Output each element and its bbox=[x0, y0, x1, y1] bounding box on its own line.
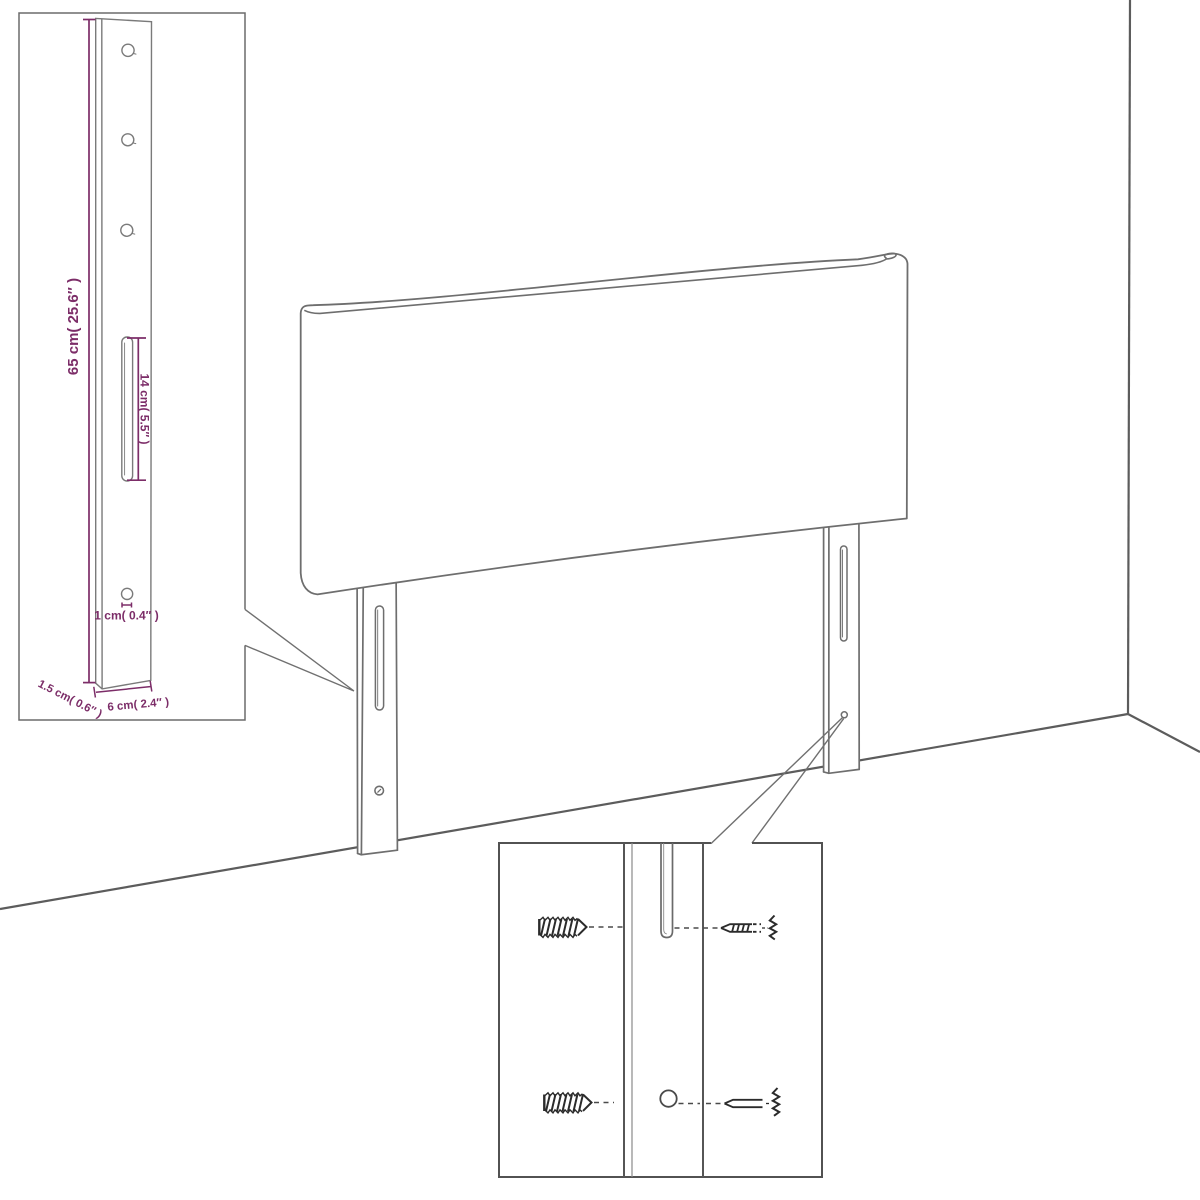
svg-text:1 cm( 0.4″ ): 1 cm( 0.4″ ) bbox=[94, 609, 158, 623]
svg-text:65 cm( 25.6″ ): 65 cm( 25.6″ ) bbox=[65, 278, 82, 375]
svg-text:14 cm( 5.5″ ): 14 cm( 5.5″ ) bbox=[138, 373, 152, 444]
